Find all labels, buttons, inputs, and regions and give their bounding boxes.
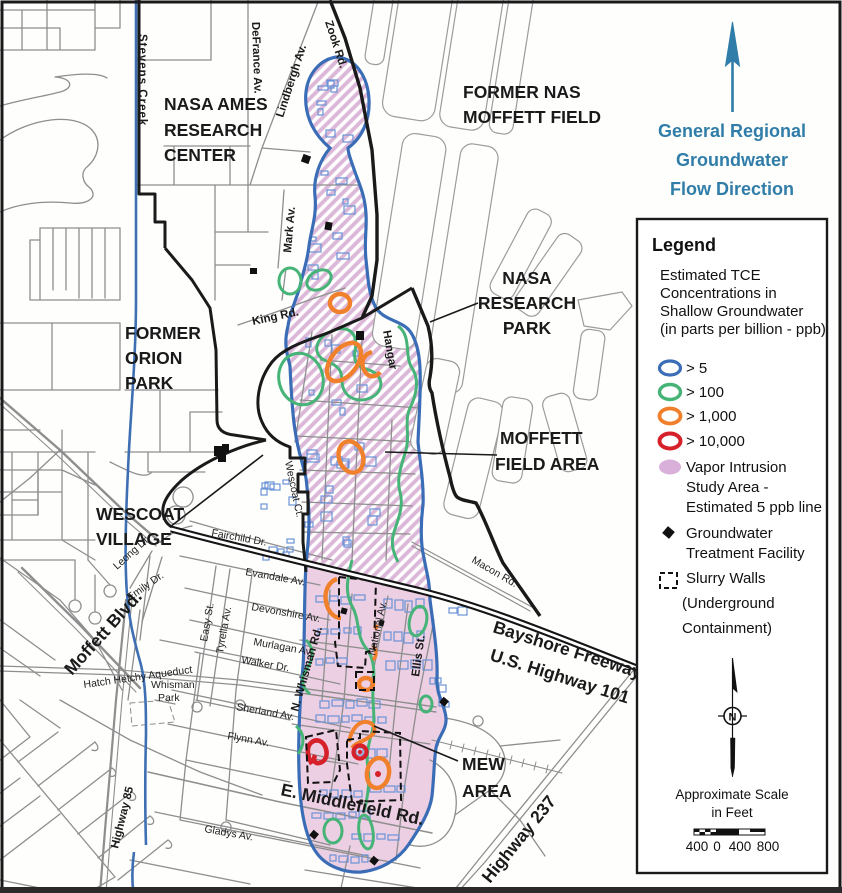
svg-text:Estimated 5 ppb line: Estimated 5 ppb line [686,499,822,516]
svg-text:MOFFETT FIELD: MOFFETT FIELD [463,107,601,127]
svg-text:Groundwater: Groundwater [676,150,788,170]
svg-text:> 10,000: > 10,000 [686,433,745,450]
svg-text:FORMER: FORMER [125,323,201,343]
svg-text:Whisman: Whisman [151,679,195,691]
svg-text:Concentrations in: Concentrations in [660,285,777,302]
svg-text:Estimated TCE: Estimated TCE [660,267,761,284]
svg-text:CENTER: CENTER [164,145,236,165]
svg-text:NASA: NASA [502,268,552,288]
svg-text:Legend: Legend [652,235,716,255]
svg-text:FORMER NAS: FORMER NAS [463,82,581,102]
svg-text:PARK: PARK [125,373,174,393]
svg-text:FIELD AREA: FIELD AREA [495,454,600,474]
svg-text:DeFrance Av.: DeFrance Av. [249,22,263,94]
svg-text:MEW: MEW [462,754,505,774]
svg-text:> 5: > 5 [686,360,707,377]
svg-text:Treatment Facility: Treatment Facility [686,545,805,562]
svg-text:ORION: ORION [125,348,182,368]
svg-text:(Underground: (Underground [682,595,775,612]
svg-text:Flow Direction: Flow Direction [670,179,794,199]
svg-text:Slurry Walls: Slurry Walls [686,570,765,587]
svg-text:PARK: PARK [503,318,552,338]
svg-text:General Regional: General Regional [658,121,806,141]
svg-text:N: N [729,712,737,724]
svg-text:AREA: AREA [462,781,512,801]
svg-text:MOFFETT: MOFFETT [500,428,583,448]
svg-text:WESCOAT: WESCOAT [96,504,184,524]
svg-text:0: 0 [713,839,721,854]
svg-text:800: 800 [757,839,780,854]
svg-text:> 1,000: > 1,000 [686,408,736,425]
svg-text:RESEARCH: RESEARCH [164,120,262,140]
svg-text:NASA AMES: NASA AMES [164,94,268,114]
svg-text:in Feet: in Feet [711,805,753,820]
svg-text:RESEARCH: RESEARCH [478,293,576,313]
svg-text:Groundwater: Groundwater [686,525,773,542]
svg-text:Vapor Intrusion: Vapor Intrusion [686,459,787,476]
svg-text:> 100: > 100 [686,384,724,401]
svg-text:Study Area -: Study Area - [686,479,769,496]
svg-text:(in parts per billion - ppb): (in parts per billion - ppb) [660,321,826,338]
svg-text:Approximate Scale: Approximate Scale [675,787,788,802]
svg-text:Containment): Containment) [682,620,772,637]
svg-text:400: 400 [729,839,752,854]
svg-text:400: 400 [686,839,709,854]
svg-text:Stevens Creek: Stevens Creek [136,34,148,126]
svg-text:Park: Park [158,692,180,704]
svg-text:Shallow Groundwater: Shallow Groundwater [660,303,803,320]
